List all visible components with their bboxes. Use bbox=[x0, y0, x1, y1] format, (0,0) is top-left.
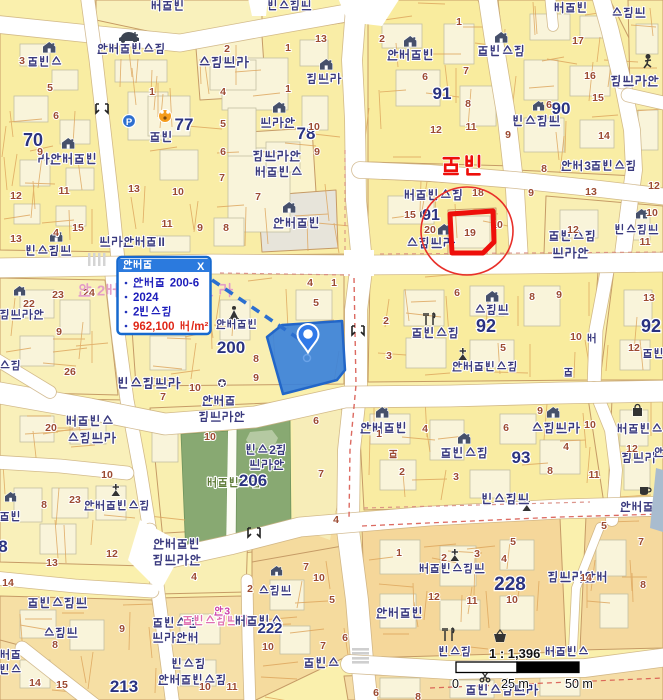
svg-text:14: 14 bbox=[598, 130, 610, 142]
svg-text:9: 9 bbox=[56, 326, 62, 338]
svg-text:2: 2 bbox=[133, 306, 139, 318]
svg-text:5: 5 bbox=[510, 536, 516, 548]
svg-text:93: 93 bbox=[512, 448, 531, 467]
svg-text:13: 13 bbox=[128, 183, 140, 195]
svg-text:50 m: 50 m bbox=[565, 677, 593, 691]
svg-text:213: 213 bbox=[110, 677, 138, 696]
svg-text:12: 12 bbox=[428, 591, 440, 603]
svg-text:12: 12 bbox=[430, 124, 442, 136]
svg-text:8: 8 bbox=[223, 222, 229, 234]
svg-text:10: 10 bbox=[308, 121, 320, 133]
svg-text:8: 8 bbox=[640, 579, 646, 591]
svg-text:10: 10 bbox=[646, 207, 658, 219]
svg-text:4: 4 bbox=[53, 227, 59, 239]
svg-text:3: 3 bbox=[224, 606, 230, 618]
svg-text:9: 9 bbox=[119, 623, 125, 635]
svg-text:II: II bbox=[158, 235, 165, 249]
svg-text:6: 6 bbox=[53, 110, 59, 122]
svg-text:13: 13 bbox=[46, 557, 58, 569]
svg-text:11: 11 bbox=[58, 185, 69, 197]
svg-text:77: 77 bbox=[175, 115, 194, 134]
svg-text:2: 2 bbox=[379, 33, 385, 45]
svg-text:10: 10 bbox=[584, 419, 596, 431]
svg-text:962,100: 962,100 bbox=[133, 321, 178, 333]
svg-text:15: 15 bbox=[404, 209, 416, 221]
svg-text:3: 3 bbox=[19, 55, 25, 67]
svg-text:15: 15 bbox=[56, 679, 68, 691]
svg-text:16: 16 bbox=[584, 70, 596, 82]
svg-text:6: 6 bbox=[342, 632, 348, 644]
svg-text:91: 91 bbox=[433, 84, 452, 103]
svg-text:200-6: 200-6 bbox=[167, 277, 200, 289]
svg-text:P: P bbox=[126, 117, 133, 128]
svg-text:4: 4 bbox=[307, 277, 313, 289]
svg-text:3: 3 bbox=[584, 159, 591, 173]
svg-text:4: 4 bbox=[220, 86, 226, 98]
svg-text:10: 10 bbox=[189, 382, 201, 394]
svg-text:15: 15 bbox=[592, 92, 604, 104]
svg-text:1: 1 bbox=[149, 86, 155, 98]
svg-text:23: 23 bbox=[69, 494, 81, 506]
svg-text:90: 90 bbox=[552, 99, 571, 118]
svg-text:14: 14 bbox=[29, 677, 41, 689]
svg-text:20: 20 bbox=[424, 224, 436, 236]
svg-text:23: 23 bbox=[52, 289, 64, 301]
svg-text:26: 26 bbox=[64, 366, 76, 378]
svg-text:12: 12 bbox=[648, 180, 660, 192]
svg-text:10: 10 bbox=[172, 186, 184, 198]
svg-text:13: 13 bbox=[315, 33, 327, 45]
svg-text:25 m: 25 m bbox=[501, 677, 529, 691]
svg-text:8: 8 bbox=[0, 537, 8, 556]
svg-text:11: 11 bbox=[639, 236, 650, 248]
svg-text:7: 7 bbox=[463, 65, 469, 77]
svg-text:11: 11 bbox=[226, 681, 237, 693]
svg-text:4: 4 bbox=[191, 571, 197, 583]
svg-text:2: 2 bbox=[399, 466, 405, 478]
svg-text:7: 7 bbox=[255, 191, 261, 203]
svg-text:9: 9 bbox=[556, 289, 562, 301]
svg-text:6: 6 bbox=[546, 99, 552, 111]
svg-text:8: 8 bbox=[547, 465, 553, 477]
svg-text:6: 6 bbox=[220, 146, 226, 158]
svg-text:5: 5 bbox=[329, 594, 335, 606]
svg-text:200: 200 bbox=[217, 338, 245, 357]
svg-text:228: 228 bbox=[494, 574, 526, 595]
svg-text:11: 11 bbox=[588, 469, 599, 481]
svg-text:2024: 2024 bbox=[133, 292, 159, 304]
svg-text:9: 9 bbox=[505, 129, 511, 141]
svg-text:9: 9 bbox=[528, 187, 534, 199]
svg-text:8: 8 bbox=[465, 98, 471, 110]
svg-text:92: 92 bbox=[641, 316, 661, 336]
svg-text:22: 22 bbox=[23, 298, 35, 310]
svg-text:14: 14 bbox=[2, 577, 14, 589]
svg-text:2: 2 bbox=[97, 282, 105, 299]
svg-text:10: 10 bbox=[204, 431, 216, 443]
svg-text:13: 13 bbox=[10, 233, 22, 245]
svg-text:12: 12 bbox=[628, 342, 640, 354]
svg-text:5: 5 bbox=[47, 82, 53, 94]
svg-text:5: 5 bbox=[601, 520, 607, 532]
svg-text:7: 7 bbox=[219, 172, 225, 184]
svg-text:7: 7 bbox=[303, 561, 309, 573]
svg-text:8: 8 bbox=[529, 291, 535, 303]
svg-text:1: 1 bbox=[396, 547, 402, 559]
svg-text:8: 8 bbox=[415, 691, 421, 700]
svg-text:7: 7 bbox=[318, 468, 324, 480]
svg-text:8: 8 bbox=[52, 639, 58, 651]
svg-text:92: 92 bbox=[476, 316, 496, 336]
svg-text:12: 12 bbox=[567, 224, 579, 236]
svg-text:13: 13 bbox=[643, 292, 655, 304]
svg-text:2: 2 bbox=[247, 583, 253, 595]
svg-text:1: 1 bbox=[376, 428, 382, 440]
svg-text:1: 1 bbox=[285, 83, 291, 95]
svg-text:6: 6 bbox=[454, 287, 460, 299]
svg-text:5: 5 bbox=[220, 118, 226, 130]
svg-text:9: 9 bbox=[37, 146, 43, 158]
svg-text:12: 12 bbox=[10, 190, 22, 202]
svg-text:8: 8 bbox=[541, 163, 547, 175]
svg-text:9: 9 bbox=[197, 222, 203, 234]
svg-text:1: 1 bbox=[331, 277, 337, 289]
svg-text:5: 5 bbox=[313, 297, 319, 309]
svg-text:14: 14 bbox=[580, 572, 592, 584]
svg-text:12: 12 bbox=[106, 548, 118, 560]
svg-text:6: 6 bbox=[373, 687, 379, 699]
svg-text:5: 5 bbox=[500, 342, 506, 354]
svg-text:10: 10 bbox=[570, 331, 582, 343]
svg-text:91: 91 bbox=[422, 207, 440, 224]
svg-text:10: 10 bbox=[313, 572, 325, 584]
svg-text:6: 6 bbox=[503, 422, 509, 434]
svg-text:206: 206 bbox=[239, 471, 267, 490]
svg-text:9: 9 bbox=[253, 372, 259, 384]
svg-text:10: 10 bbox=[101, 469, 113, 481]
svg-text:/m²: /m² bbox=[191, 321, 208, 333]
svg-text:11: 11 bbox=[466, 595, 477, 607]
svg-text:6: 6 bbox=[313, 415, 319, 427]
svg-text:4: 4 bbox=[563, 441, 569, 453]
svg-text:2: 2 bbox=[224, 43, 230, 55]
svg-text:X: X bbox=[197, 261, 205, 273]
svg-text:10: 10 bbox=[262, 641, 274, 653]
svg-text:8: 8 bbox=[41, 499, 47, 511]
svg-text:1: 1 bbox=[456, 16, 462, 28]
svg-text:0: 0 bbox=[452, 677, 459, 691]
svg-text:3: 3 bbox=[386, 350, 392, 362]
svg-text:11: 11 bbox=[465, 121, 476, 133]
svg-text:4: 4 bbox=[501, 553, 507, 565]
svg-text:6: 6 bbox=[422, 71, 428, 83]
svg-text:2: 2 bbox=[269, 443, 276, 457]
svg-text:4: 4 bbox=[422, 423, 428, 435]
svg-text:11: 11 bbox=[161, 218, 172, 230]
svg-text:7: 7 bbox=[160, 391, 166, 403]
svg-text:3: 3 bbox=[453, 471, 459, 483]
svg-text:19: 19 bbox=[464, 227, 476, 239]
svg-text:7: 7 bbox=[320, 640, 326, 652]
svg-text:10: 10 bbox=[199, 681, 211, 693]
svg-text:4: 4 bbox=[333, 514, 339, 526]
svg-text:20: 20 bbox=[45, 422, 57, 434]
svg-text:12: 12 bbox=[626, 443, 638, 455]
svg-text:1: 1 bbox=[285, 42, 291, 54]
svg-text:8: 8 bbox=[253, 353, 259, 365]
svg-text:13: 13 bbox=[585, 186, 597, 198]
svg-text:15: 15 bbox=[72, 222, 84, 234]
svg-text:2: 2 bbox=[383, 315, 389, 327]
svg-text:10: 10 bbox=[506, 594, 518, 606]
svg-text:2: 2 bbox=[441, 552, 447, 564]
svg-text:222: 222 bbox=[257, 620, 282, 637]
svg-text:7: 7 bbox=[638, 536, 644, 548]
svg-text:9: 9 bbox=[314, 146, 320, 158]
svg-text:1 : 1,396: 1 : 1,396 bbox=[489, 646, 540, 661]
svg-text:3: 3 bbox=[474, 548, 480, 560]
svg-text:17: 17 bbox=[572, 35, 584, 47]
svg-text:9: 9 bbox=[537, 405, 543, 417]
